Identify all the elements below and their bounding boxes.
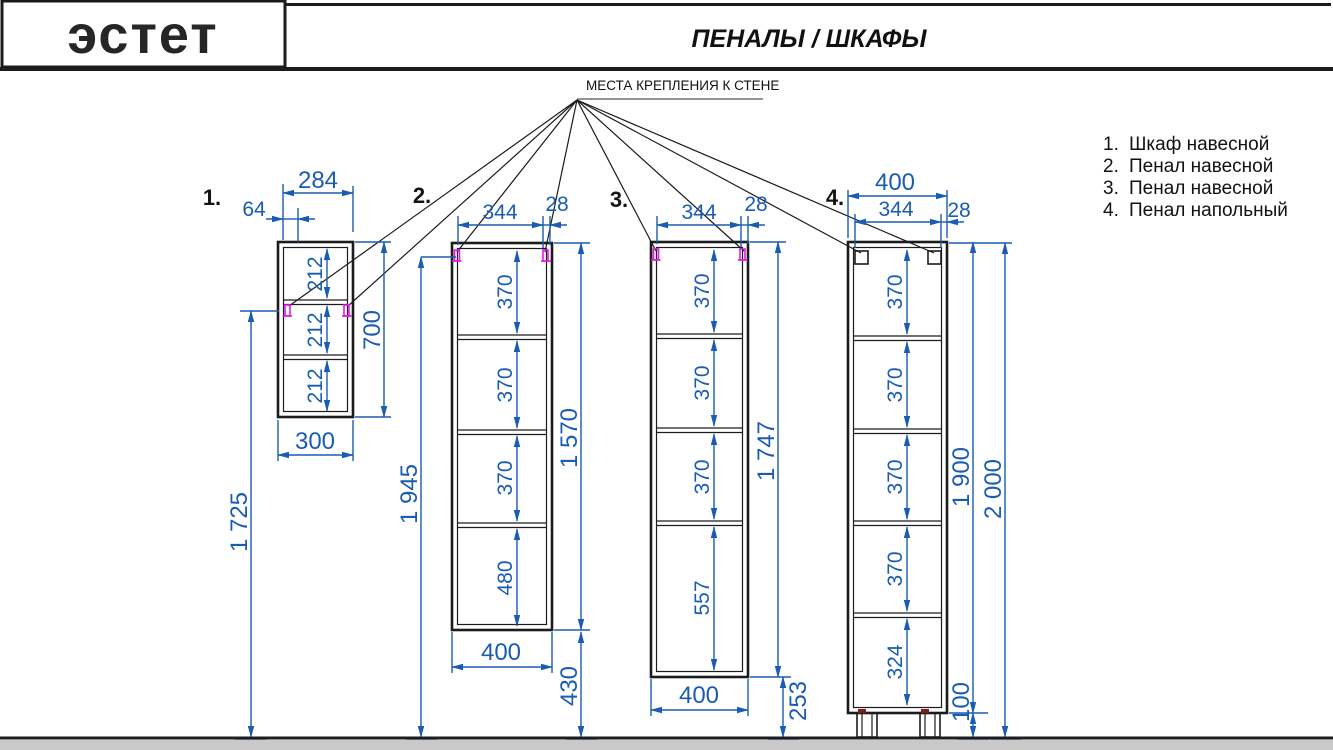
legend: 1. Шкаф навесной 2. Пенал навесной 3. Пе…: [1103, 134, 1288, 221]
cab2-dim-section-3: 370: [494, 460, 517, 495]
cabinet-1-number: 1.: [203, 185, 221, 210]
legend-item-3-num: 3.: [1103, 178, 1119, 199]
cabinet-2: 2.: [396, 183, 597, 739]
legend-item-4-label: Пенал напольный: [1129, 200, 1288, 221]
cab4-dim-panel: 28: [947, 199, 970, 222]
cab1-dim-bottom-width: 300: [295, 428, 335, 455]
header: эстет ПЕНАЛЫ / ШКАФЫ: [0, 1, 1333, 69]
cab2-dim-panel: 28: [545, 193, 568, 216]
cab1-dim-top-width: 284: [298, 167, 338, 194]
cab3-dim-section-4: 557: [691, 580, 714, 615]
wall-mount-note: МЕСТА КРЕПЛЕНИЯ К СТЕНЕ: [586, 78, 779, 93]
cab4-mount-plate-right: [928, 251, 941, 264]
cab4-dim-section-3: 370: [884, 459, 907, 494]
legend-item-2-label: Пенал навесной: [1129, 156, 1273, 177]
cab4-dim-top-width: 344: [878, 198, 913, 221]
page-title: ПЕНАЛЫ / ШКАФЫ: [692, 25, 928, 53]
cab1-dim-section-3: 212: [304, 368, 327, 403]
cab4-dim-section-1: 370: [884, 274, 907, 309]
cab1-dim-section-2: 212: [304, 312, 327, 347]
floor-shading: [0, 740, 1333, 750]
cab2-dim-to-floor: 430: [556, 666, 583, 706]
cabinet-4: 4.: [826, 169, 1021, 739]
cabinet-3: 3.: [610, 187, 812, 739]
cab2-dim-height: 1 570: [556, 408, 583, 468]
cab3-dim-bottom-width: 400: [679, 682, 719, 709]
cab2-dim-section-4: 480: [494, 560, 517, 595]
cab1-dim-mount-to-floor: 1 725: [226, 492, 253, 552]
cab3-dim-panel: 28: [744, 193, 767, 216]
cab1-dim-section-1: 212: [304, 256, 327, 291]
cab3-dim-section-3: 370: [691, 459, 714, 494]
cab1-dim-mount-offset: 64: [242, 198, 266, 221]
cabinet-2-number: 2.: [413, 183, 431, 208]
cab4-dim-section-2: 370: [884, 367, 907, 402]
brand-logo: эстет: [67, 5, 218, 65]
cab4-mount-plate-left: [855, 251, 868, 264]
cab3-dim-to-floor: 253: [785, 681, 812, 721]
cab4-dim-section-5: 324: [884, 644, 907, 679]
legend-item-1-num: 1.: [1103, 134, 1119, 155]
cab2-dim-mount-to-floor: 1 945: [396, 464, 423, 524]
legend-item-2-num: 2.: [1103, 156, 1119, 177]
legend-item-1-label: Шкаф навесной: [1129, 134, 1269, 155]
cab2-dim-section-1: 370: [494, 274, 517, 309]
cab4-dim-overall-height: 2 000: [980, 459, 1007, 519]
cab4-dim-leg-height: 100: [948, 682, 975, 722]
cab2-dim-top-width: 344: [482, 201, 517, 224]
cab3-dim-top-width: 344: [681, 201, 716, 224]
cabinet-2-wall-clips: [452, 250, 551, 261]
cab4-dim-body-height: 1 900: [948, 447, 975, 507]
cabinet-3-wall-clips: [651, 249, 748, 260]
cab4-dim-section-4: 370: [884, 551, 907, 586]
cab2-dim-bottom-width: 400: [481, 639, 521, 666]
legend-item-3-label: Пенал навесной: [1129, 178, 1273, 199]
cab3-dim-height: 1 747: [753, 421, 780, 481]
cab3-dim-section-2: 370: [691, 365, 714, 400]
leg-fitting-left: [858, 709, 866, 713]
floor: [0, 738, 1333, 750]
leg-fitting-right: [921, 709, 929, 713]
cabinet-4-number: 4.: [826, 185, 844, 210]
cab3-dim-section-1: 370: [691, 273, 714, 308]
technical-drawing-page: эстет ПЕНАЛЫ / ШКАФЫ МЕСТА КРЕПЛЕНИЯ К С…: [0, 0, 1333, 750]
cab1-dim-height: 700: [359, 310, 386, 350]
legend-item-4-num: 4.: [1103, 200, 1119, 221]
cab4-dim-overall-width: 400: [875, 169, 915, 196]
drawing-canvas: эстет ПЕНАЛЫ / ШКАФЫ МЕСТА КРЕПЛЕНИЯ К С…: [0, 0, 1333, 750]
cabinet-3-number: 3.: [610, 187, 628, 212]
cab2-dim-section-2: 370: [494, 367, 517, 402]
